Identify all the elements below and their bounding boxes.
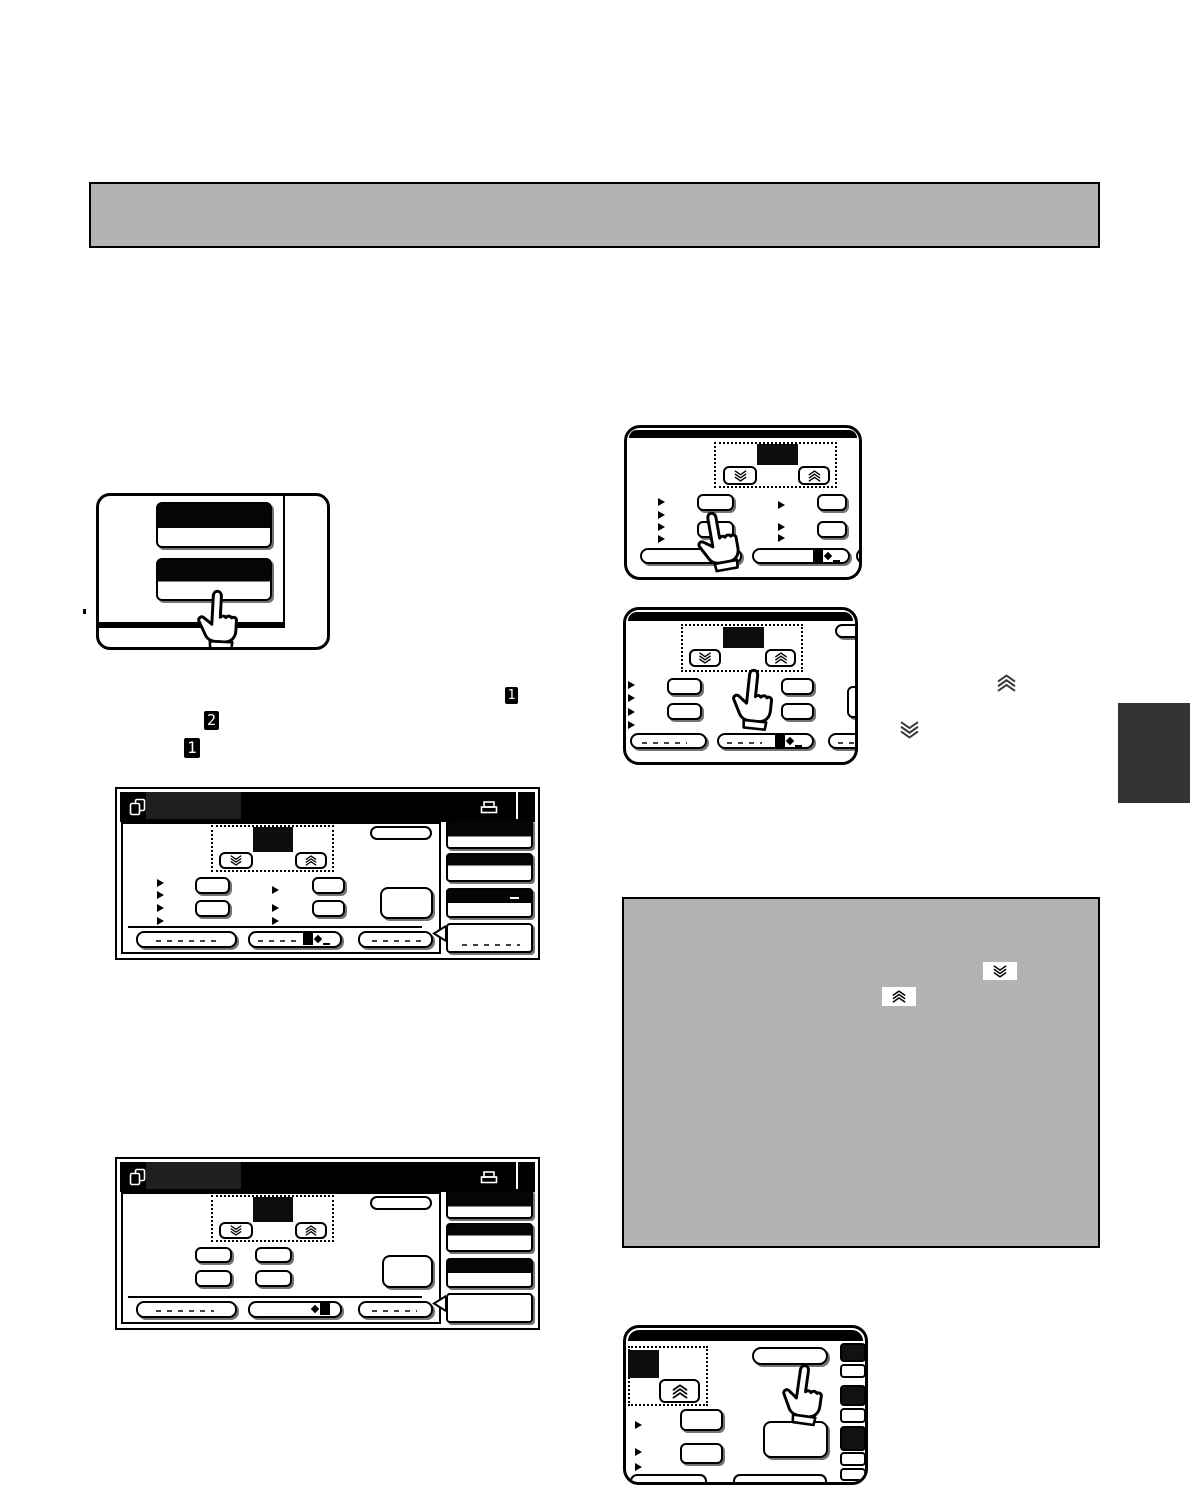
list-arrow (272, 904, 279, 912)
chevron-up-icon (771, 652, 791, 664)
chevron-up-icon (804, 470, 825, 482)
ok-key (382, 1255, 433, 1288)
list-arrow (658, 523, 665, 531)
paper-feed-icon (303, 933, 330, 945)
zoom-up-key (295, 852, 327, 869)
panel-top-bar (628, 1330, 863, 1341)
edge-key-partial (835, 624, 858, 638)
edge-key-partial (847, 686, 858, 718)
pointing-hand-icon (187, 588, 242, 650)
figure-panel-auto-image (623, 1325, 868, 1485)
printer-icon (480, 801, 498, 814)
header-divider (516, 1162, 518, 1192)
panel-top-bar (629, 430, 857, 438)
preset-ratio-key (312, 900, 345, 917)
side-key-white (840, 1452, 866, 1466)
bottom-key-paper-select (717, 733, 814, 749)
pointing-hand-icon (721, 663, 780, 734)
list-arrow (778, 501, 785, 509)
side-key-white (840, 1408, 866, 1423)
zoom-up-key (295, 1222, 327, 1239)
scan-artifact-dot (83, 609, 86, 614)
preset-ratio-key (195, 877, 230, 894)
list-arrow (635, 1463, 642, 1471)
paper-feed-icon (775, 735, 802, 747)
zoom-down-key (219, 852, 253, 869)
preset-ratio-key (255, 1247, 292, 1263)
bottom-key-paper-select (752, 548, 850, 564)
zoom-down-key (689, 649, 721, 667)
preset-ratio-key (195, 900, 230, 917)
side-key-white (840, 1364, 866, 1378)
preset-ratio-key (195, 1247, 232, 1263)
figure-special-modes-keys (96, 493, 330, 650)
side-key-black (840, 1426, 866, 1451)
preset-ratio-key (781, 703, 814, 720)
list-arrow (272, 886, 279, 894)
side-key-black (840, 1343, 866, 1362)
preset-ratio-key (255, 1270, 292, 1287)
bottom-key-partial (630, 1474, 707, 1485)
preset-ratio-key (667, 703, 702, 720)
bottom-key-right (358, 931, 433, 948)
ratio-display (253, 827, 293, 852)
list-arrow (778, 534, 785, 542)
step-2-badge: 2 (204, 711, 219, 730)
chevron-down-chip (983, 962, 1017, 980)
manual-page: 1 2 1 (0, 0, 1190, 1485)
chevron-down-icon (226, 1225, 246, 1236)
list-arrow (157, 904, 164, 912)
preset-ratio-key (195, 1270, 232, 1287)
side-key-black (840, 1385, 866, 1406)
callout-notch (432, 1295, 446, 1312)
chevron-down-icon (226, 855, 246, 866)
figure-panel-zoom-keys (623, 607, 858, 765)
list-arrow (658, 498, 665, 506)
ratio-display (253, 1197, 293, 1222)
preset-ratio-key (680, 1409, 723, 1431)
screen-divider (128, 1296, 422, 1298)
screen-title-area (146, 1162, 241, 1189)
zoom-down-key (723, 466, 757, 485)
chevron-down-icon (989, 965, 1011, 978)
list-arrow (628, 708, 635, 716)
note-box (622, 897, 1100, 1248)
ratio-display (628, 1350, 659, 1378)
preset-ratio-key (667, 678, 702, 695)
bottom-key-partial (828, 733, 858, 749)
list-arrow (635, 1421, 642, 1429)
screen-header (120, 1162, 535, 1192)
chapter-side-tab (1118, 703, 1190, 803)
copy-document-icon (129, 798, 147, 816)
list-arrow (157, 879, 164, 887)
side-key-4 (446, 1293, 533, 1323)
step-1-badge: 1 (184, 738, 200, 758)
figure-touch-screen-step2 (115, 1157, 540, 1330)
list-arrow (635, 1448, 642, 1456)
bottom-key-left (136, 1301, 237, 1318)
chevron-up-icon (667, 1384, 693, 1399)
side-key-3 (446, 888, 533, 918)
auto-image-key (370, 1196, 432, 1210)
chevron-up-icon (990, 674, 1023, 692)
side-key-2 (446, 853, 533, 882)
preset-ratio-key (817, 521, 847, 538)
bottom-key-partial (733, 1474, 827, 1485)
preset-ratio-key (312, 877, 345, 894)
bottom-key-right (358, 1301, 433, 1318)
screen-title-area (146, 792, 241, 819)
screen-divider (128, 926, 422, 928)
list-arrow (778, 523, 785, 531)
paper-feed-icon (813, 550, 840, 562)
bottom-key-left (136, 931, 237, 948)
chevron-up-chip (882, 987, 916, 1006)
ratio-display (723, 627, 764, 648)
callout-notch (432, 925, 446, 942)
side-key-1 (446, 1189, 533, 1219)
copy-document-icon (129, 1168, 147, 1186)
side-key-white (840, 1468, 866, 1481)
list-arrow (157, 891, 164, 899)
bottom-key-paper-select (248, 931, 342, 948)
preset-ratio-key (817, 494, 847, 511)
zoom-up-key (659, 1379, 700, 1403)
list-arrow (628, 681, 635, 689)
figure-panel-zoom-select (624, 425, 862, 580)
chevron-down-icon (695, 652, 715, 664)
section-title-bar (89, 182, 1100, 248)
side-key-2 (446, 1223, 533, 1252)
pointing-hand-icon (770, 1360, 830, 1429)
bottom-key-partial (856, 548, 862, 564)
side-key-1 (446, 819, 533, 849)
chevron-up-icon (888, 990, 910, 1003)
zoom-up-key (798, 466, 830, 485)
list-arrow (157, 917, 164, 925)
screen-header (120, 792, 535, 822)
panel-top-bar (628, 612, 853, 621)
pointing-hand-icon (684, 506, 746, 578)
preset-ratio-key (781, 678, 814, 695)
bottom-key-left (630, 733, 707, 749)
preset-ratio-key (680, 1443, 723, 1464)
printer-icon (480, 1171, 498, 1184)
bottom-key-paper-select (248, 1301, 342, 1318)
list-arrow (658, 535, 665, 543)
zoom-up-key (765, 649, 796, 667)
paper-feed-icon (312, 1303, 330, 1315)
list-arrow (658, 511, 665, 519)
header-divider (516, 792, 518, 822)
list-arrow (628, 694, 635, 702)
list-arrow (272, 917, 279, 925)
step-1-inline-badge: 1 (505, 687, 518, 704)
side-key-4 (446, 923, 533, 953)
chevron-up-icon (301, 1225, 321, 1236)
chevron-down-icon (730, 470, 751, 482)
chevron-down-icon (893, 721, 926, 739)
side-key-3 (446, 1258, 533, 1288)
figure-touch-screen-step1 (115, 787, 540, 960)
zoom-down-key (219, 1222, 253, 1239)
ok-key (380, 887, 433, 919)
chevron-up-icon (301, 855, 321, 866)
list-arrow (628, 721, 635, 729)
menu-key-1 (156, 502, 272, 548)
ratio-display (757, 444, 798, 465)
screen-edge-vertical-line (283, 496, 285, 628)
auto-image-key (370, 826, 432, 840)
